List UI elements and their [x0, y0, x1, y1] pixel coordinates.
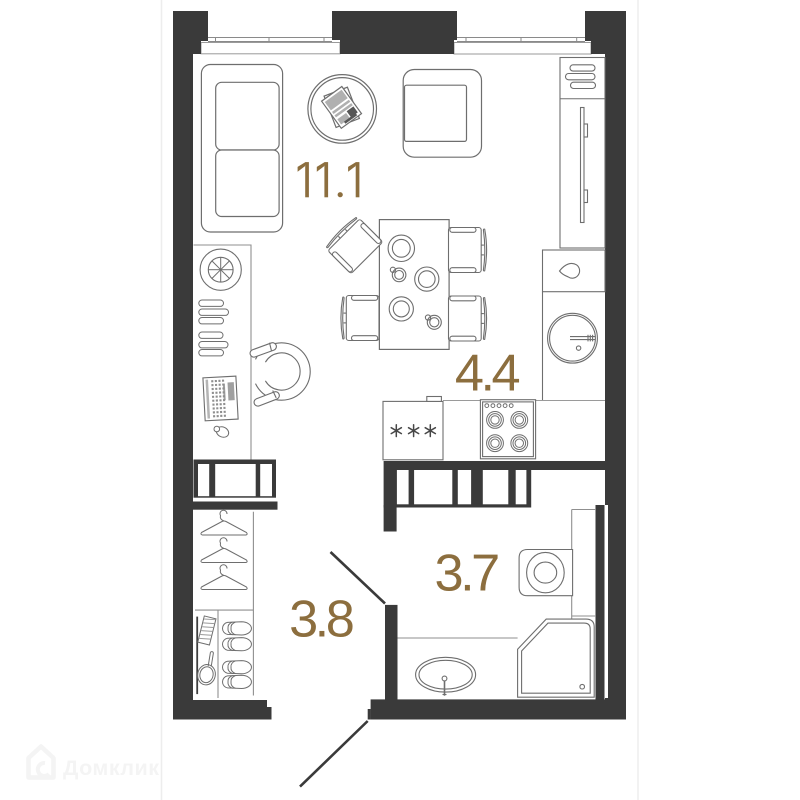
svg-text:3.8: 3.8 [289, 590, 353, 648]
svg-text:3.7: 3.7 [434, 545, 498, 603]
svg-text:4.4: 4.4 [455, 345, 520, 403]
svg-text:Домклик: Домклик [63, 756, 160, 780]
